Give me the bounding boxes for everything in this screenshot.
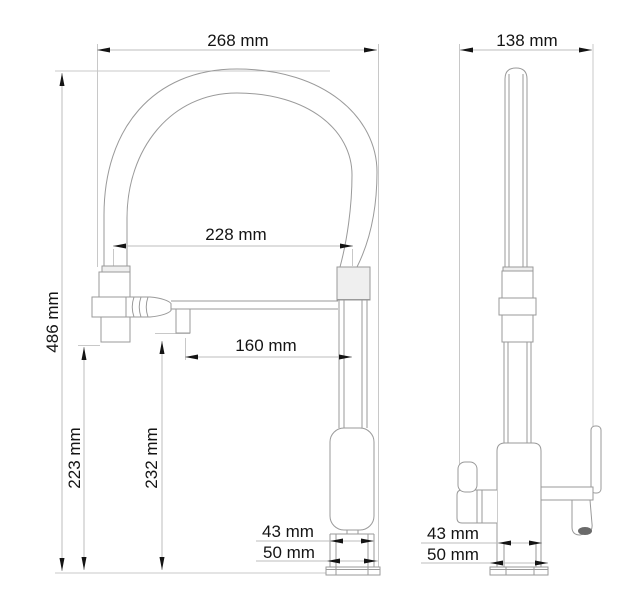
dim-label-outlet-reach: 160 mm bbox=[235, 336, 296, 355]
handle-blade bbox=[591, 426, 601, 493]
side-tube-ring bbox=[503, 267, 533, 271]
side-view bbox=[457, 68, 601, 575]
side-tube-inner-lines bbox=[509, 74, 523, 267]
column-body bbox=[339, 300, 367, 428]
dim-label-side-flange-width: 50 mm bbox=[427, 545, 479, 564]
spray-head-lower bbox=[101, 317, 130, 342]
column-collar bbox=[337, 267, 370, 300]
counterweight-tab bbox=[347, 530, 358, 534]
dim-label-front-flange-width: 50 mm bbox=[263, 543, 315, 562]
technical-drawing-canvas: 268 mm 138 mm 228 mm 160 mm 486 mm 223 m… bbox=[0, 0, 635, 600]
side-collar-upper bbox=[502, 271, 533, 298]
base-flange bbox=[326, 567, 380, 575]
water-outlet bbox=[176, 309, 190, 333]
dim-label-spray-head-height: 223 mm bbox=[65, 427, 84, 488]
horizontal-tube bbox=[171, 301, 338, 309]
spray-head-upper bbox=[99, 272, 130, 297]
side-tube-outline bbox=[505, 68, 527, 267]
dim-label-total-height: 486 mm bbox=[43, 291, 62, 352]
side-lower-tube bbox=[504, 342, 531, 443]
side-base-flange bbox=[490, 567, 548, 575]
dim-label-side-base-width: 43 mm bbox=[427, 524, 479, 543]
faucet-dimension-drawing: 268 mm 138 mm 228 mm 160 mm 486 mm 223 m… bbox=[0, 0, 635, 600]
handle-pivot-cap bbox=[578, 527, 592, 535]
counterweight bbox=[330, 428, 374, 530]
dim-label-outlet-height: 232 mm bbox=[142, 427, 161, 488]
side-collar-lower bbox=[502, 315, 533, 342]
handle-arm bbox=[541, 487, 593, 500]
front-view bbox=[92, 69, 380, 575]
spray-head-grip bbox=[92, 297, 126, 317]
dim-label-total-depth: 138 mm bbox=[496, 31, 557, 50]
side-junction-block bbox=[499, 298, 536, 315]
dim-label-front-base-width: 43 mm bbox=[262, 522, 314, 541]
dim-label-total-width: 268 mm bbox=[207, 31, 268, 50]
side-spout-knob bbox=[458, 462, 477, 492]
dim-label-spout-span: 228 mm bbox=[205, 225, 266, 244]
spray-hose-collar bbox=[102, 266, 130, 272]
